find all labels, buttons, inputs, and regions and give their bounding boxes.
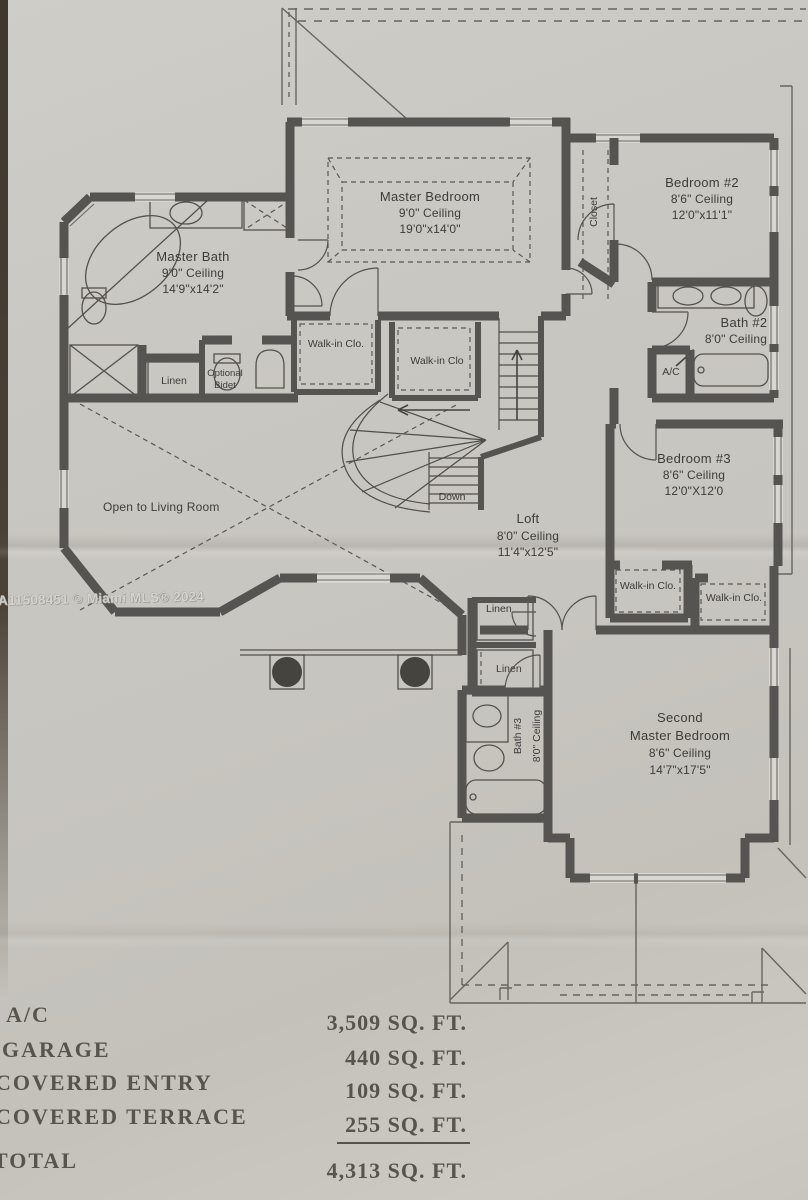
scanned-floor-plan-page: Master Bedroom 9'0" Ceiling 19'0"x14'0" … [0,0,808,1200]
area-row-value: 440 SQ. FT. [345,1045,467,1071]
area-row-label: GARAGE [2,1037,111,1063]
area-row-label: A/C [6,1002,50,1028]
area-row-label: COVERED TERRACE [0,1104,248,1130]
area-summary-table: A/C 3,509 SQ. FT. GARAGE 440 SQ. FT. COV… [0,0,808,1200]
total-value: 4,313 SQ. FT. [327,1158,467,1184]
area-row-value: 255 SQ. FT. [345,1112,467,1138]
area-row-value: 109 SQ. FT. [345,1078,467,1104]
area-row-value: 3,509 SQ. FT. [327,1010,467,1036]
total-rule [337,1142,470,1144]
total-label: TOTAL [0,1148,78,1174]
area-row-label: COVERED ENTRY [0,1070,213,1096]
